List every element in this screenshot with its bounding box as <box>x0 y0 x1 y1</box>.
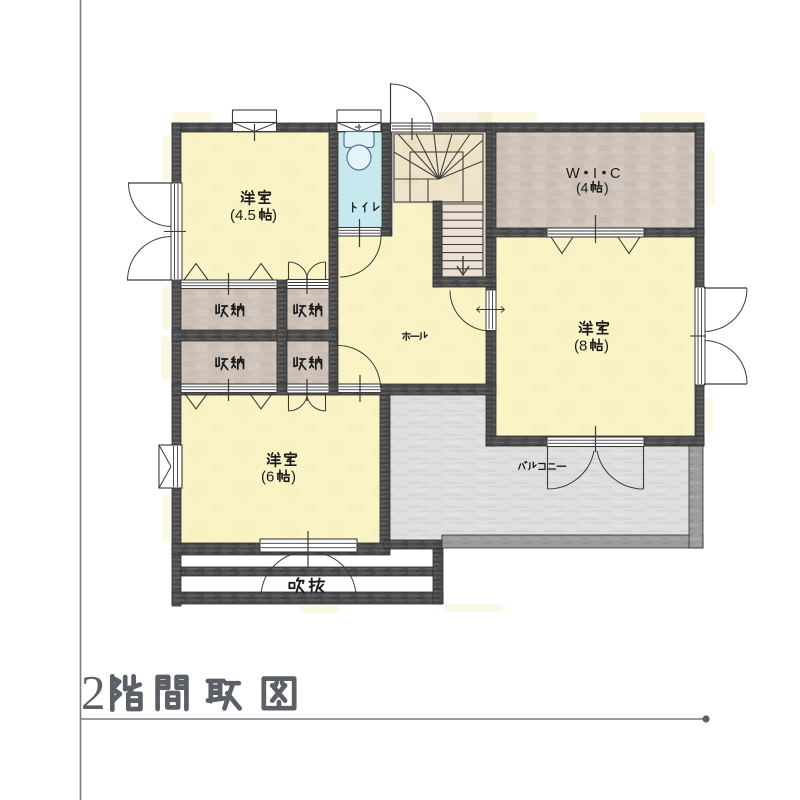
svg-text:): ) <box>272 207 277 224</box>
svg-text:): ) <box>604 180 609 196</box>
svg-text:(6: (6 <box>261 469 274 486</box>
svg-text:(4: (4 <box>576 180 589 196</box>
svg-text:I: I <box>593 166 597 182</box>
svg-text:C: C <box>610 166 620 182</box>
svg-text:2: 2 <box>81 665 106 720</box>
svg-text:): ) <box>291 469 296 486</box>
svg-text:): ) <box>604 338 609 355</box>
svg-text:(4.5: (4.5 <box>230 207 256 224</box>
svg-text:(8: (8 <box>574 338 587 355</box>
